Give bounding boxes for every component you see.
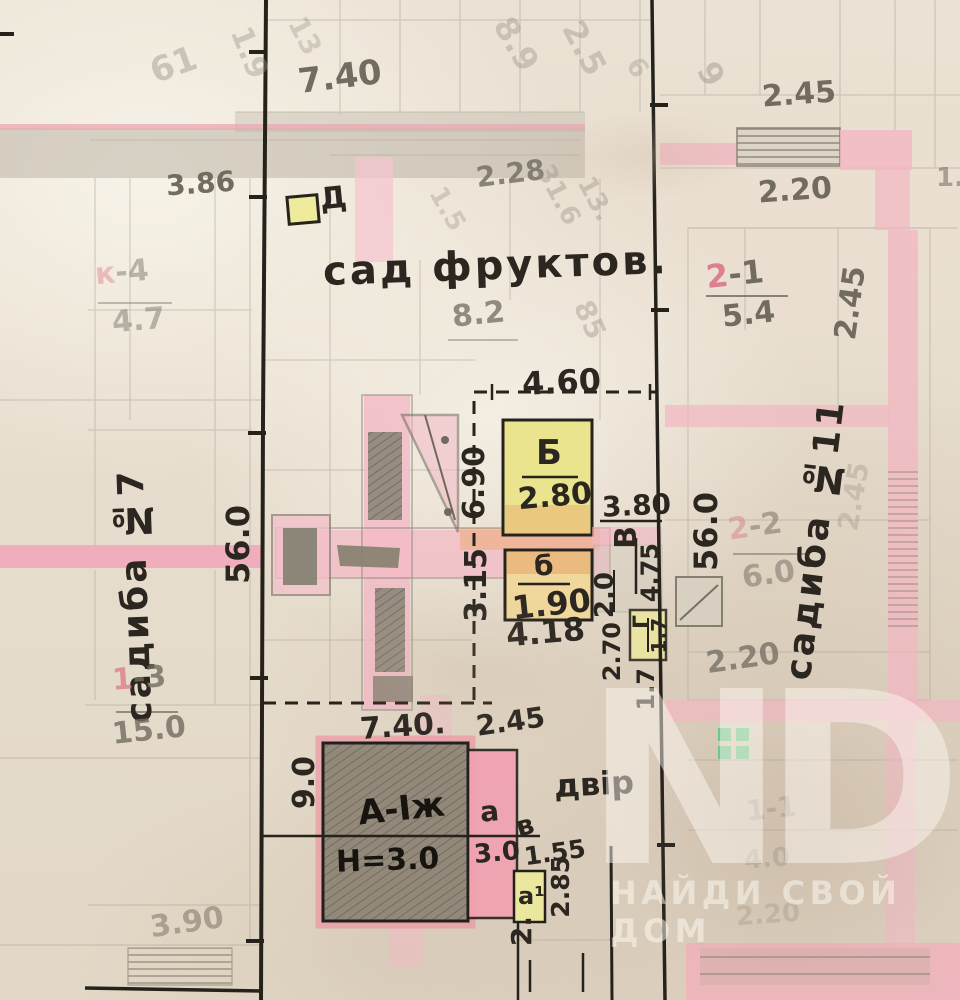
building-a-letter: А-Іж: [356, 788, 446, 831]
watermark-tagline: НАЙДИ СВОЙ ДОМ: [610, 874, 960, 950]
dim-2-85: 2.85: [548, 856, 573, 918]
apartment-2-2-index: -2: [746, 505, 784, 544]
apartment-k-4-index: -4: [114, 253, 150, 291]
building-b-letter: Б: [536, 436, 562, 470]
annex-a-area: 3.0: [473, 838, 521, 868]
apartment-k-4-area: 4.7: [111, 304, 167, 339]
dim-3-15: 3.15: [462, 548, 492, 622]
watermark-monogram: ND: [584, 660, 941, 900]
dim-2-dot: 2.: [508, 916, 536, 946]
apartment-2-1-index: -1: [726, 252, 765, 294]
dim-2-45-topright: 2.45: [761, 77, 837, 112]
apartment-2-1-area: 5.4: [721, 297, 777, 332]
dim-4-60: 4.60: [521, 364, 602, 400]
frontage-left-label: 56.0: [222, 505, 254, 584]
structure-v-area: 4.75: [638, 543, 662, 602]
pink-wall-right-vertical: [888, 230, 918, 470]
dim-3-86: 3.86: [165, 168, 236, 201]
dim-7-40-bottom: 7.40.: [359, 709, 446, 745]
building-b-area: 2.80: [517, 479, 593, 515]
dim-8-2: 8.2: [451, 297, 507, 332]
marker-d-label: Д: [319, 183, 349, 216]
dim-2-0: 2.0: [592, 572, 618, 618]
dim-7-40-top: 7.40: [296, 55, 383, 99]
apartment-1-3-area: 15.0: [111, 712, 188, 750]
faint-dim-1: 1.: [936, 165, 960, 191]
scanned-cadastral-plan: 61 1.9 13 7.40 8.9 2.5 6 9 2.45 2.20 1. …: [0, 0, 960, 1000]
dim-2-20-topright: 2.20: [757, 173, 833, 208]
building-a-group: [319, 739, 545, 925]
building-b2-letter: б: [534, 552, 554, 580]
orchard-label: сад фруктов.: [322, 240, 669, 292]
frontage-right-label: 56.0: [690, 492, 722, 571]
hatched-band-bottom-left: [128, 948, 232, 985]
marker-d-square: [287, 195, 319, 225]
apartment-2-1-label: 2-1: [704, 255, 765, 293]
annex-a-rect: [468, 750, 517, 918]
apartment-k-4-label: к-4: [94, 256, 150, 291]
building-a-height: Н=3.0: [336, 844, 440, 878]
annex-a1-letter: а¹: [518, 884, 545, 908]
dim-3-80: 3.80: [601, 490, 671, 522]
apartment-1-3-number: 1: [111, 661, 134, 697]
dim-9-0: 9.0: [290, 756, 320, 809]
pink-line-top: [0, 124, 585, 130]
apartment-1-3-label: 1-3: [111, 662, 167, 696]
annex-a-letter: а: [479, 797, 500, 827]
dim-6-90: 6.90: [460, 446, 490, 520]
dim-4-18: 4.18: [505, 613, 586, 652]
apartment-2-2-label: 2-2: [726, 508, 784, 545]
apartment-1-3-index: -3: [132, 659, 168, 696]
